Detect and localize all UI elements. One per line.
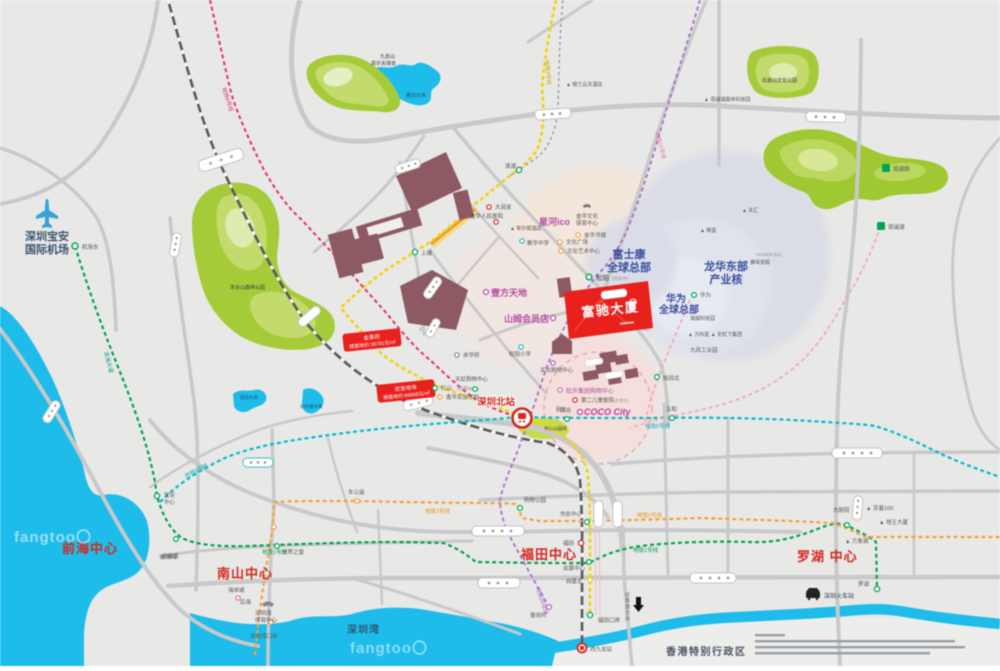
svg-text:体育中心: 体育中心 — [255, 616, 278, 624]
svg-text:地铁1号线: 地铁1号线 — [633, 546, 659, 554]
svg-text:观湖荫: 观湖荫 — [893, 165, 910, 173]
svg-text:▲ 观澜湖森林科技园: ▲ 观澜湖森林科技园 — [704, 96, 750, 103]
svg-text:茜坑水库: 茜坑水库 — [406, 92, 426, 99]
svg-text:深圳湾: 深圳湾 — [255, 609, 272, 617]
svg-text:▲ 根兰云天酒店: ▲ 根兰云天酒店 — [566, 81, 602, 88]
svg-text:COCO City: COCO City — [584, 407, 631, 417]
svg-text:深圳湾口岸: 深圳湾口岸 — [250, 632, 278, 640]
svg-text:星河ico: 星河ico — [539, 216, 571, 227]
svg-text:地铁2号线: 地铁2号线 — [425, 507, 451, 515]
svg-text:罗湖 中心: 罗湖 中心 — [797, 549, 858, 564]
svg-text:车公庙: 车公庙 — [348, 488, 365, 496]
svg-text:岗厦北: 岗厦北 — [566, 577, 583, 585]
svg-text:全球总部: 全球总部 — [658, 303, 699, 316]
svg-text:后海: 后海 — [240, 598, 252, 606]
svg-text:富士康: 富士康 — [613, 247, 647, 261]
svg-text:金华书城: 金华书城 — [584, 231, 607, 239]
svg-text:▲ 京基100: ▲ 京基100 — [866, 504, 893, 512]
svg-text:民治: 民治 — [556, 406, 566, 413]
svg-text:前海湾: 前海湾 — [162, 552, 179, 560]
svg-text:▲ 天汇: ▲ 天汇 — [742, 207, 758, 214]
svg-text:海威科技园: 海威科技园 — [690, 315, 715, 322]
svg-text:深圳火车站: 深圳火车站 — [824, 592, 854, 600]
svg-text:深圳北站: 深圳北站 — [477, 396, 516, 408]
svg-text:上塘: 上塘 — [421, 249, 433, 257]
svg-text:深圳宝安: 深圳宝安 — [25, 229, 69, 243]
svg-text:关坊购物中心: 关坊购物中心 — [540, 366, 574, 374]
svg-text:fangtoo〇: fangtoo〇 — [350, 639, 428, 657]
svg-text:华为: 华为 — [666, 292, 686, 305]
svg-text:(在建中): (在建中) — [614, 397, 629, 403]
svg-text:文化艺术中心: 文化艺术中心 — [567, 247, 601, 255]
svg-text:松阳小学: 松阳小学 — [509, 350, 532, 358]
svg-text:文化广场: 文化广场 — [566, 238, 589, 246]
svg-text:红山: 红山 — [441, 384, 452, 392]
svg-text:石岩山文化公园: 石岩山文化公园 — [762, 77, 797, 84]
svg-text:▲ 地王大厦: ▲ 地王大厦 — [879, 518, 908, 526]
svg-text:山姆会员店: 山姆会员店 — [504, 313, 549, 324]
svg-text:西丽水库: 西丽水库 — [240, 394, 258, 401]
svg-text:金华文化: 金华文化 — [576, 212, 599, 220]
svg-text:松阳: 松阳 — [596, 273, 609, 282]
svg-text:罗湖: 罗湖 — [858, 580, 870, 588]
svg-text:深圳湾: 深圳湾 — [347, 623, 380, 636]
svg-text:第二儿童医院: 第二儿童医院 — [581, 396, 615, 404]
svg-text:往香港方向: 往香港方向 — [624, 591, 630, 622]
svg-text:地铁2号线: 地铁2号线 — [637, 511, 663, 519]
svg-text:香华实验学校: 香华实验学校 — [446, 393, 480, 401]
svg-text:中心: 中心 — [164, 498, 176, 506]
svg-text:天虹购物中心: 天虹购物中心 — [455, 375, 489, 383]
svg-text:观澜湖: 观澜湖 — [888, 223, 905, 231]
svg-text:大润发: 大润发 — [495, 203, 512, 211]
svg-text:香港特别行政区: 香港特别行政区 — [666, 645, 747, 658]
svg-text:教华中学: 教华中学 — [527, 239, 550, 247]
svg-text:地铁5号线: 地铁5号线 — [645, 422, 671, 430]
svg-text:大剧院: 大剧院 — [833, 506, 850, 514]
svg-text:▲ 万科星 ▲ 天虹下集团: ▲ 万科星 ▲ 天虹下集团 — [688, 331, 742, 338]
svg-text:宝安: 宝安 — [164, 491, 176, 499]
svg-text:保育中心: 保育中心 — [576, 219, 599, 227]
svg-text:佛母宫殿: 佛母宫殿 — [750, 259, 770, 266]
svg-text:产业核: 产业核 — [710, 272, 743, 286]
svg-text:▲ 御玺: ▲ 御玺 — [700, 227, 716, 234]
svg-text:福田: 福田 — [563, 539, 574, 547]
svg-text:大风工业园: 大风工业园 — [690, 346, 718, 354]
svg-text:坂田北: 坂田北 — [663, 374, 680, 382]
svg-text:福田中心: 福田中心 — [520, 547, 577, 562]
svg-text:余华府: 余华府 — [463, 351, 480, 359]
svg-text:华为: 华为 — [700, 291, 711, 299]
svg-text:龙华东部: 龙华东部 — [703, 259, 748, 273]
svg-text:世界之窗: 世界之窗 — [282, 548, 305, 556]
svg-text:壹方天地: 壹方天地 — [491, 287, 527, 298]
svg-text:fangtoo〇: fangtoo〇 — [14, 528, 92, 546]
svg-text:会展中心: 会展中心 — [563, 564, 586, 572]
svg-text:全球总部: 全球总部 — [606, 260, 651, 274]
svg-text:皇岗村: 皇岗村 — [530, 611, 547, 619]
svg-text:羊台山森林公园: 羊台山森林公园 — [230, 284, 265, 291]
svg-text:机场东: 机场东 — [82, 243, 99, 251]
svg-text:松外集团购物中心: 松外集团购物中心 — [566, 387, 614, 395]
svg-text:国际机场: 国际机场 — [25, 242, 69, 256]
svg-text:金华人民医院: 金华人民医院 — [470, 212, 504, 220]
svg-text:九息山: 九息山 — [380, 53, 395, 60]
svg-text:五和: 五和 — [666, 405, 677, 413]
svg-text:中心公园绿: 中心公园绿 — [544, 425, 567, 432]
svg-text:福田口岸: 福田口岸 — [598, 616, 621, 624]
svg-text:清湖: 清湖 — [505, 162, 517, 170]
svg-text:购物公园: 购物公园 — [524, 496, 547, 504]
svg-text:长岭陂水库: 长岭陂水库 — [300, 403, 323, 410]
svg-text:▲ 万象城: ▲ 万象城 — [845, 537, 869, 545]
svg-text:▲ 希尔顿酒店: ▲ 希尔顿酒店 — [510, 225, 541, 232]
svg-text:(规划中): (规划中) — [612, 275, 629, 282]
svg-text:市民中心: 市民中心 — [560, 510, 583, 518]
svg-text:海岸城: 海岸城 — [228, 586, 245, 594]
svg-text:西九龙站: 西九龙站 — [590, 645, 613, 653]
svg-text:南山中心: 南山中心 — [217, 566, 273, 581]
svg-text:HAISEN 611: HAISEN 611 — [756, 252, 782, 257]
svg-text:高尔夫球会: 高尔夫球会 — [371, 60, 396, 67]
